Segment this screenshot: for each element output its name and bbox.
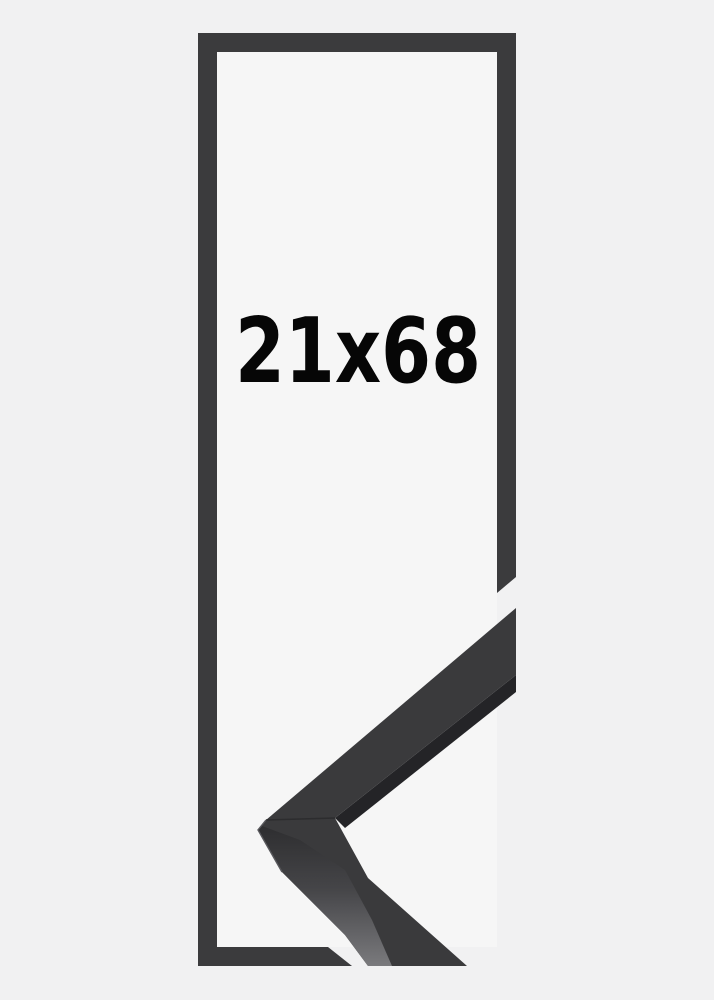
- frame-illustration: 21x68: [0, 0, 714, 1000]
- frame-left-bar: [198, 33, 217, 966]
- frame-right-bar: [497, 33, 516, 593]
- size-label: 21x68: [235, 299, 481, 404]
- frame-bottom-bar: [198, 947, 352, 966]
- frame-top-bar: [198, 33, 516, 52]
- product-image: 21x68: [0, 0, 714, 1000]
